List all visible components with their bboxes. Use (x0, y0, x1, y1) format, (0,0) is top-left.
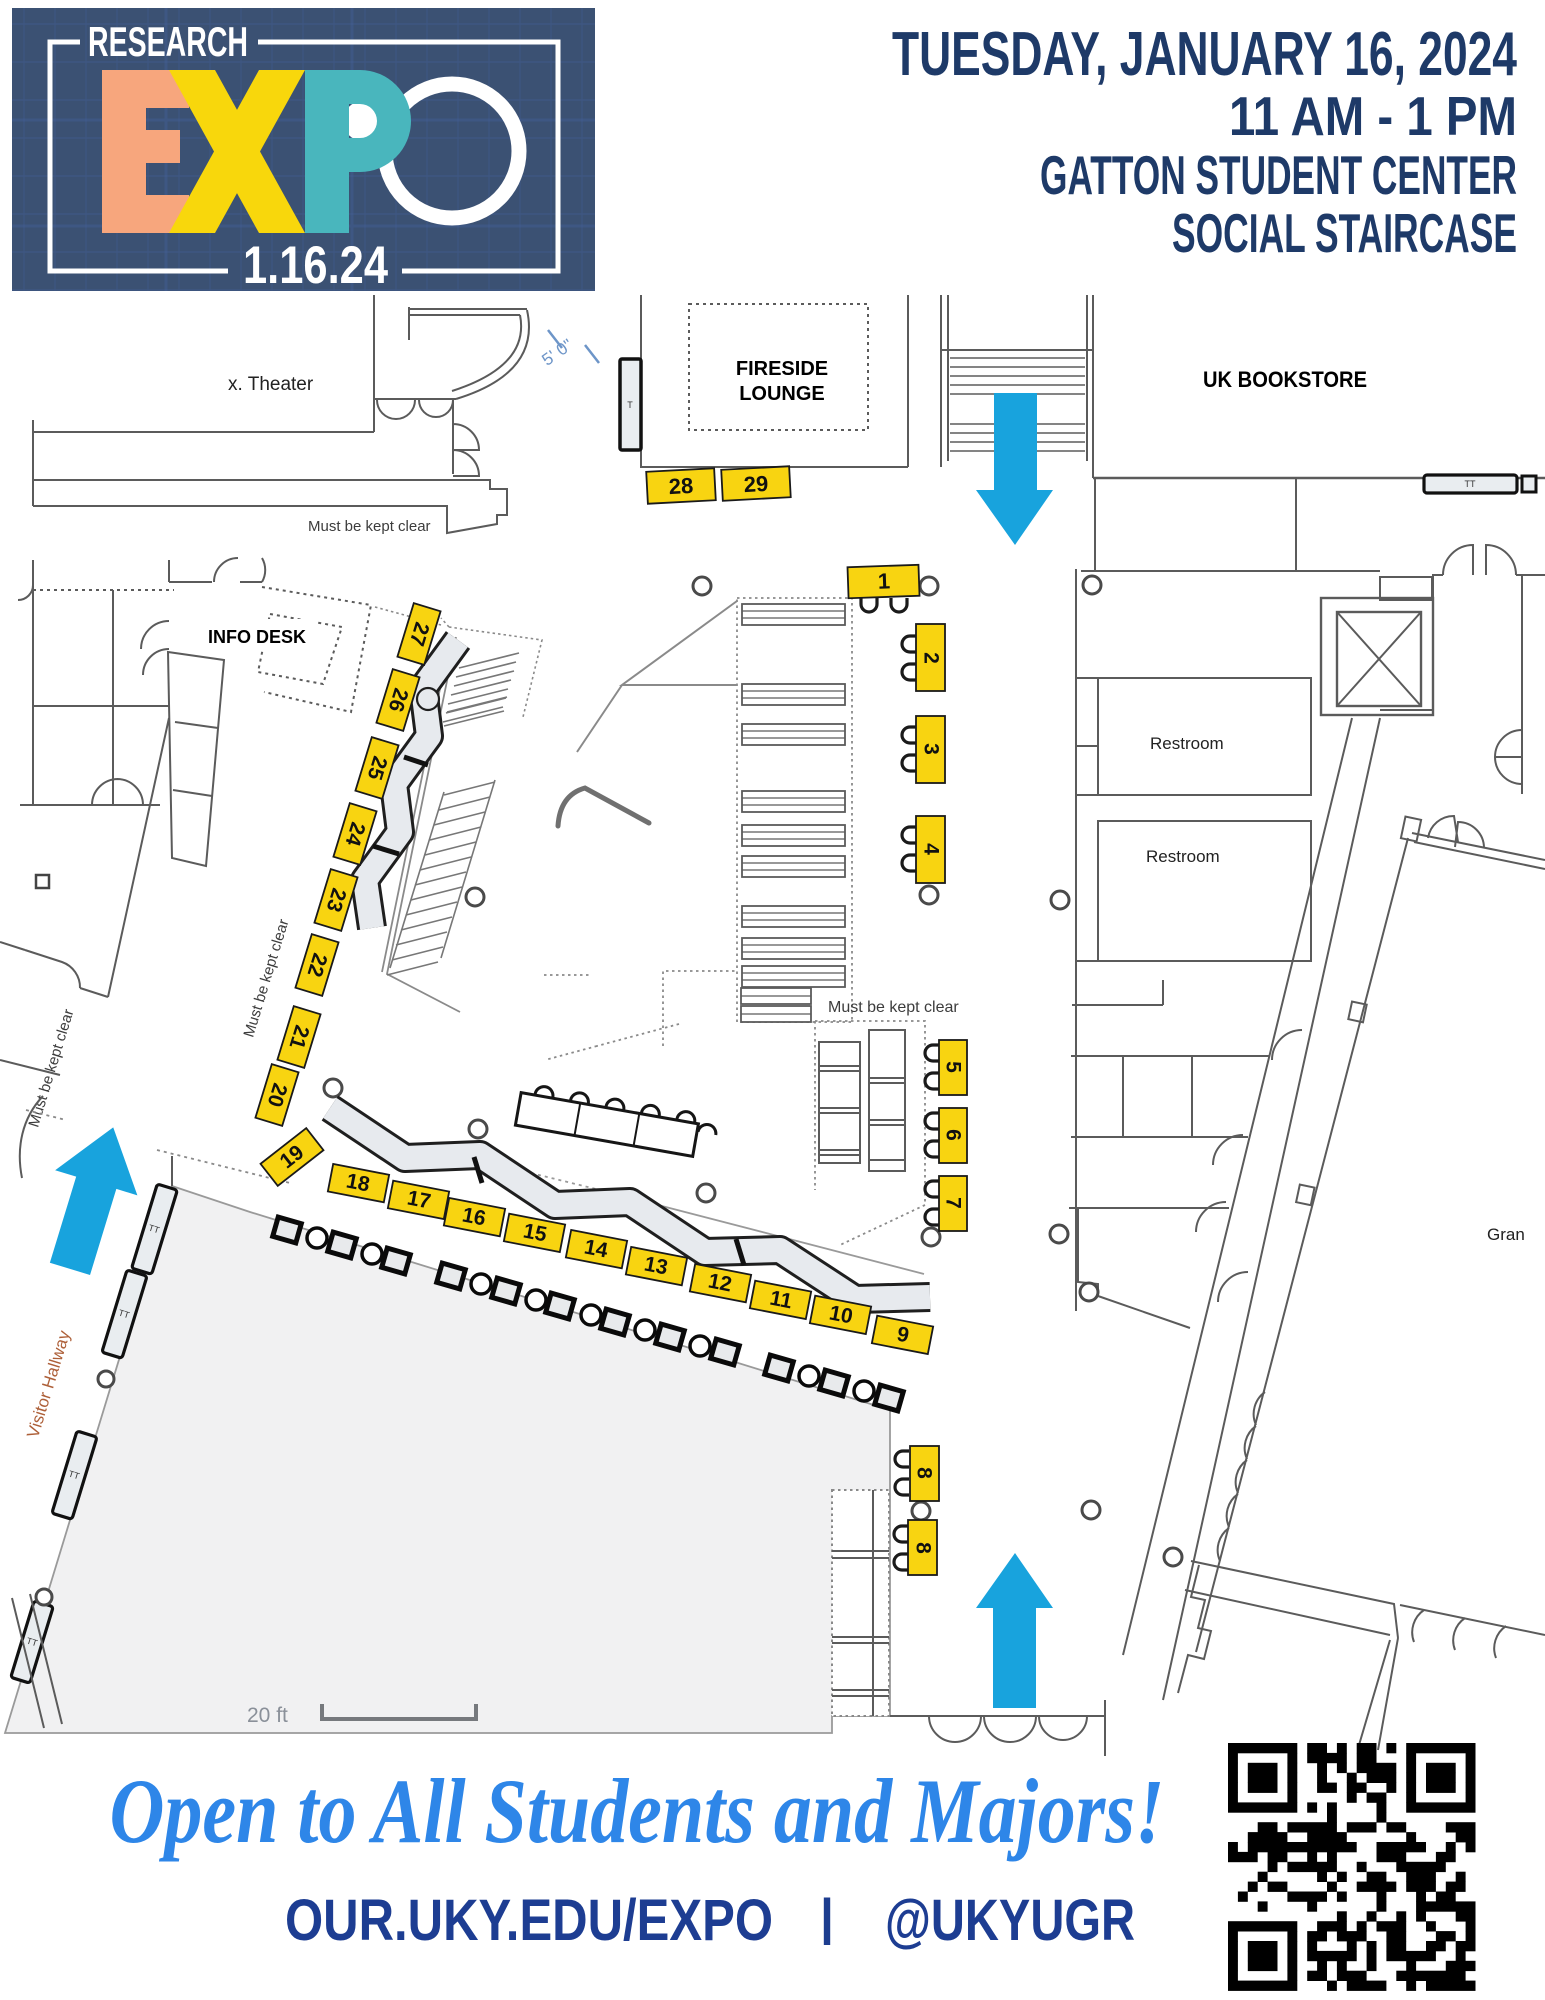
svg-text:5: 5 (942, 1061, 965, 1073)
svg-text:INFO DESK: INFO DESK (208, 627, 306, 647)
svg-text:FIRESIDE: FIRESIDE (736, 358, 828, 380)
svg-text:29: 29 (743, 471, 769, 497)
svg-text:GATTON STUDENT CENTER: GATTON STUDENT CENTER (1040, 144, 1517, 206)
svg-text:17: 17 (405, 1186, 432, 1213)
svg-text:7: 7 (942, 1197, 965, 1209)
svg-text:8: 8 (912, 1542, 935, 1554)
svg-text:Gran: Gran (1487, 1225, 1525, 1244)
svg-text:@UKYUGR: @UKYUGR (885, 1888, 1135, 1953)
svg-text:UK BOOKSTORE: UK BOOKSTORE (1203, 367, 1367, 392)
svg-text:TUESDAY, JANUARY 16, 2024: TUESDAY, JANUARY 16, 2024 (892, 20, 1517, 89)
svg-text:TT: TT (1465, 479, 1476, 489)
svg-text:13: 13 (642, 1252, 669, 1279)
svg-text:x. Theater: x. Theater (228, 374, 314, 395)
svg-text:LOUNGE: LOUNGE (739, 383, 825, 405)
svg-text:4: 4 (920, 843, 943, 855)
svg-text:8: 8 (913, 1467, 936, 1479)
svg-text:Restroom: Restroom (1146, 847, 1220, 866)
svg-text:Restroom: Restroom (1150, 734, 1224, 753)
svg-text:20 ft: 20 ft (247, 1704, 288, 1727)
svg-text:18: 18 (344, 1169, 372, 1196)
svg-text:T: T (627, 400, 633, 410)
svg-text:12: 12 (706, 1269, 733, 1296)
svg-text:15: 15 (521, 1219, 549, 1246)
svg-text:3: 3 (920, 743, 943, 755)
svg-text:Must be kept clear: Must be kept clear (828, 999, 959, 1016)
svg-text:16: 16 (460, 1203, 487, 1230)
svg-text:14: 14 (582, 1235, 610, 1262)
svg-text:28: 28 (668, 473, 694, 499)
svg-text:RESEARCH: RESEARCH (88, 18, 248, 65)
svg-text:1: 1 (877, 568, 890, 593)
svg-text:SOCIAL STAIRCASE: SOCIAL STAIRCASE (1172, 202, 1517, 264)
svg-text:OUR.UKY.EDU/EXPO: OUR.UKY.EDU/EXPO (285, 1888, 773, 1953)
svg-text:|: | (820, 1889, 834, 1946)
svg-text:Open to All Students and Major: Open to All Students and Majors! (110, 1760, 1165, 1862)
svg-text:11 AM - 1 PM: 11 AM - 1 PM (1229, 85, 1517, 147)
svg-text:11: 11 (768, 1287, 794, 1314)
svg-text:10: 10 (827, 1301, 854, 1328)
svg-text:2: 2 (920, 652, 943, 664)
svg-text:Must be kept clear: Must be kept clear (308, 518, 431, 535)
svg-text:6: 6 (942, 1129, 965, 1141)
svg-text:1.16.24: 1.16.24 (243, 236, 388, 295)
